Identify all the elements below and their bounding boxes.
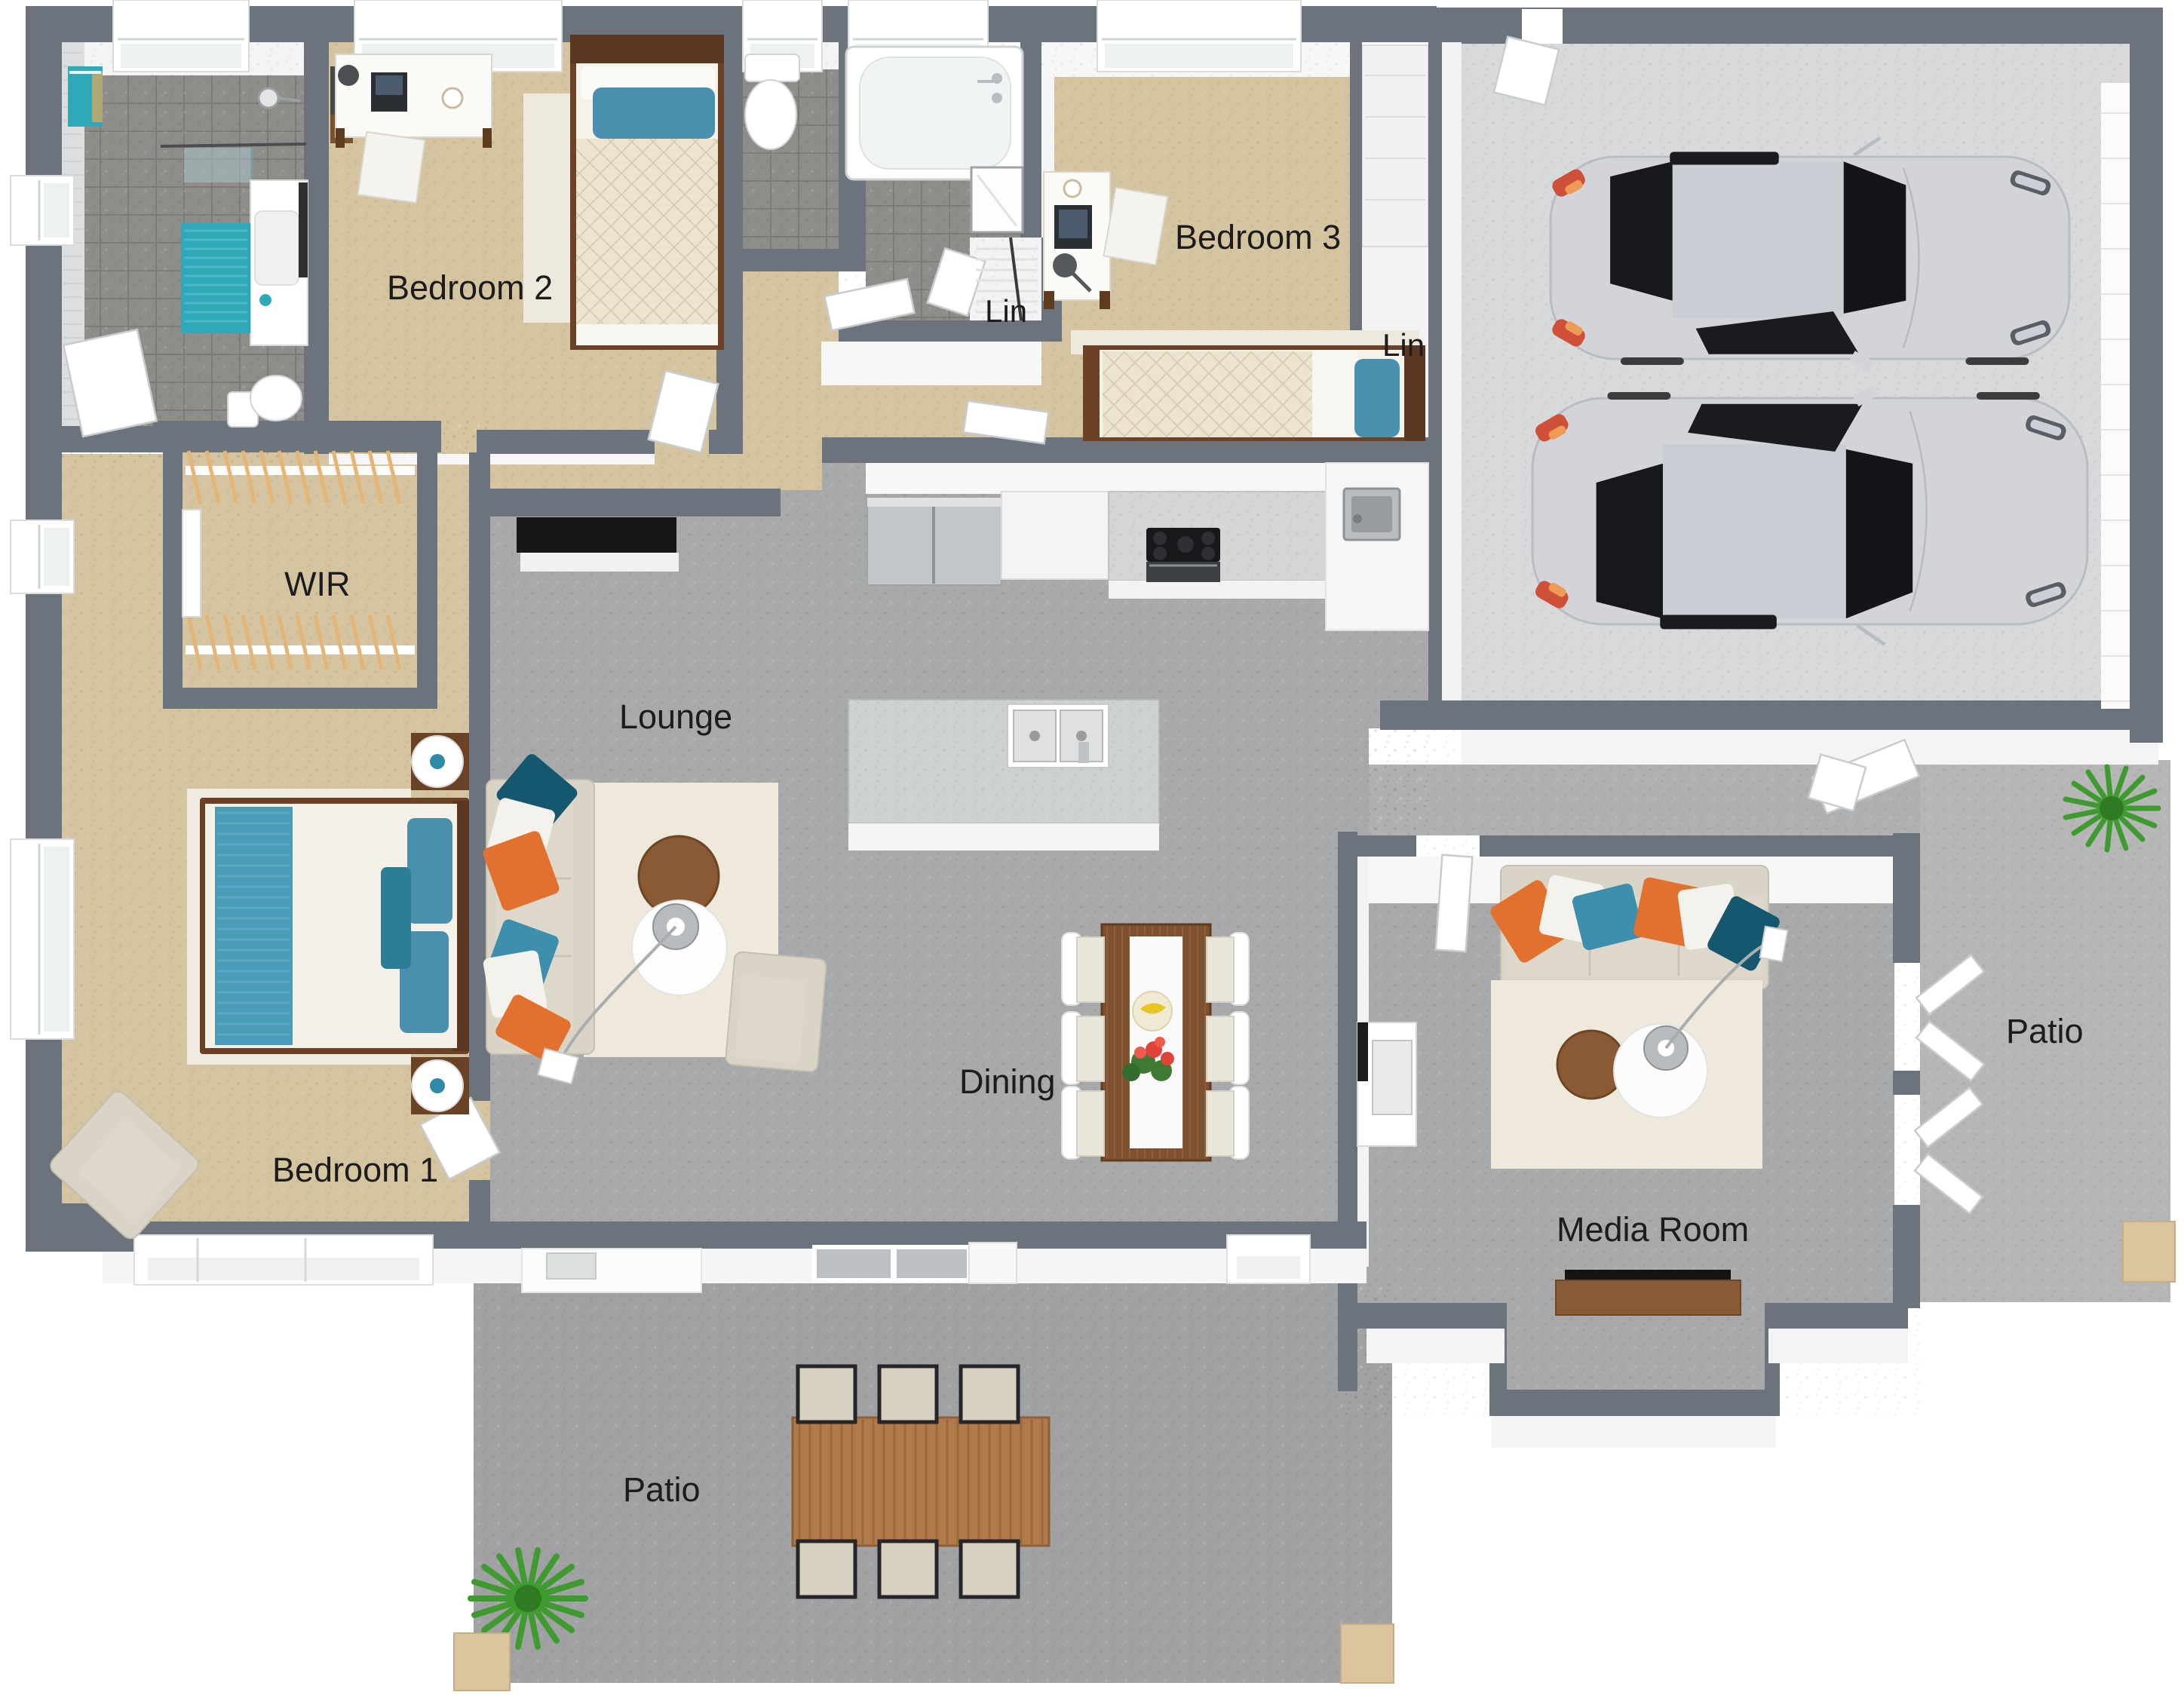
svg-text:Bedroom 2: Bedroom 2 [387,268,553,307]
svg-text:Bedroom 3: Bedroom 3 [1175,218,1341,256]
svg-text:Bedroom 1: Bedroom 1 [272,1151,438,1189]
svg-text:Dining: Dining [959,1062,1056,1101]
svg-text:Lin: Lin [985,293,1027,329]
svg-text:Patio: Patio [623,1470,701,1509]
svg-text:Lounge: Lounge [619,697,732,736]
svg-text:Lin: Lin [1382,327,1425,363]
svg-text:Media Room: Media Room [1557,1210,1749,1249]
svg-text:WIR: WIR [284,565,350,603]
svg-text:Patio: Patio [2006,1012,2084,1050]
